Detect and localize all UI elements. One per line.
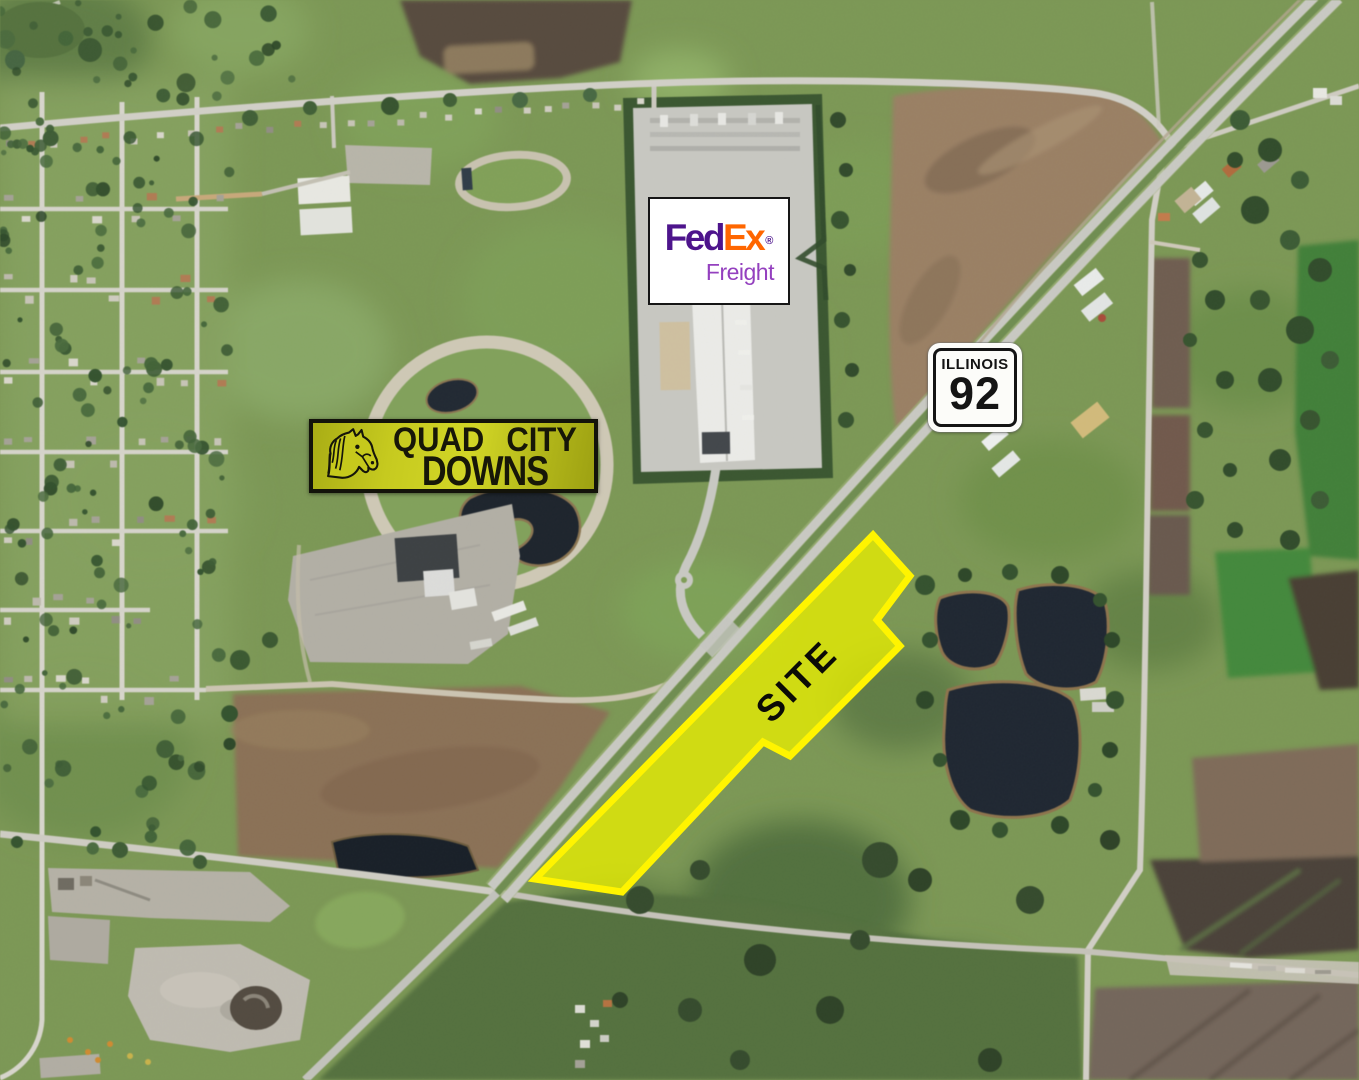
fedex-freight-label: FedEx® Freight: [648, 197, 790, 305]
fedex-logo: FedEx®: [650, 219, 788, 256]
fedex-logo-fed: Fed: [665, 217, 723, 258]
registered-mark: ®: [765, 235, 773, 247]
satellite-imagery: [0, 0, 1359, 1080]
quad-city-downs-text: QUAD CITY DOWNS: [380, 424, 590, 489]
aerial-map: SITE FedEx® Freight ILLINOIS 92 QUAD CIT…: [0, 0, 1359, 1080]
quad-city-downs-sign: QUAD CITY DOWNS: [309, 419, 598, 493]
illinois-92-shield: ILLINOIS 92: [928, 343, 1022, 432]
sign-line2: DOWNS: [385, 450, 585, 491]
fedex-logo-ex: Ex: [723, 217, 763, 258]
shield-route-number: 92: [949, 373, 1001, 414]
fedex-subbrand: Freight: [650, 259, 788, 286]
shield-inner-border: ILLINOIS 92: [933, 348, 1017, 427]
horse-head-icon: [318, 426, 380, 486]
